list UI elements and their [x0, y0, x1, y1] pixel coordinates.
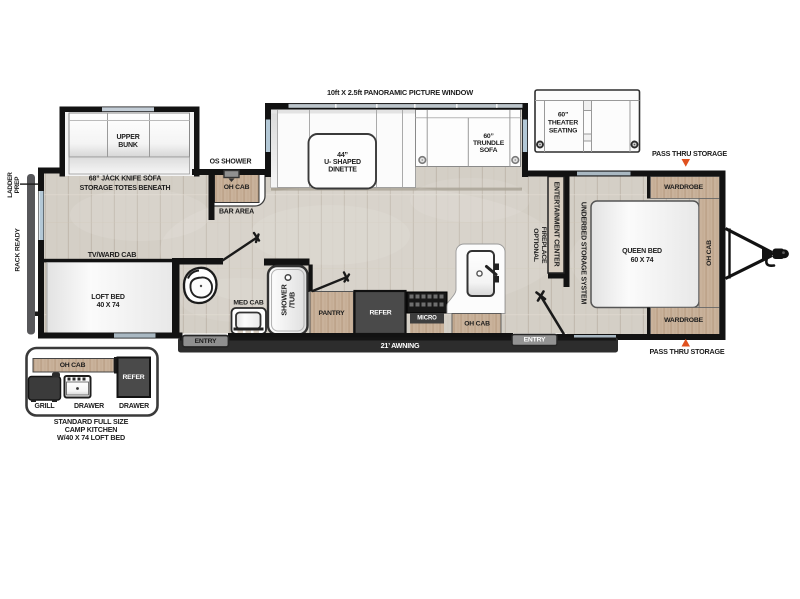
svg-text:BAR AREA: BAR AREA — [219, 209, 254, 216]
svg-text:10ft X 2.5ft PANORAMIC PICTURE: 10ft X 2.5ft PANORAMIC PICTURE WINDOW — [327, 88, 473, 97]
svg-text:MED CAB: MED CAB — [233, 299, 264, 306]
svg-text:LADDER: LADDER — [7, 172, 14, 198]
svg-text:OH CAB: OH CAB — [224, 184, 250, 191]
svg-text:OS SHOWER: OS SHOWER — [210, 159, 252, 166]
svg-text:ENTERTAINMENT CENTER: ENTERTAINMENT CENTER — [553, 182, 560, 267]
svg-text:PASS THRU STORAGE: PASS THRU STORAGE — [652, 149, 727, 158]
svg-text:BUNK: BUNK — [118, 142, 138, 149]
svg-text:UPPER: UPPER — [116, 134, 139, 141]
svg-text:STORAGE TOTES BENEATH: STORAGE TOTES BENEATH — [80, 185, 171, 192]
svg-text:60”: 60” — [558, 112, 568, 119]
svg-text:PANTRY: PANTRY — [319, 310, 346, 317]
svg-text:FIREPLACE: FIREPLACE — [540, 227, 547, 264]
svg-text:U- SHAPED: U- SHAPED — [324, 159, 361, 166]
svg-text:DRAWER: DRAWER — [119, 403, 149, 410]
svg-text:W/40 X 74 LOFT BED: W/40 X 74 LOFT BED — [57, 433, 125, 442]
svg-text:SEATING: SEATING — [549, 128, 577, 135]
svg-text:/TUB: /TUB — [288, 292, 297, 308]
svg-text:GRILL: GRILL — [35, 403, 56, 410]
svg-text:ENTRY: ENTRY — [195, 338, 217, 345]
svg-text:60”: 60” — [483, 133, 493, 140]
svg-text:PREP: PREP — [14, 176, 21, 194]
svg-text:21’ AWNING: 21’ AWNING — [381, 341, 420, 350]
svg-text:WARDROBE: WARDROBE — [664, 184, 703, 191]
svg-text:40 X 74: 40 X 74 — [97, 302, 120, 309]
svg-text:UNDERBED STORAGE SYSTEM: UNDERBED STORAGE SYSTEM — [580, 202, 587, 305]
svg-text:PASS THRU STORAGE: PASS THRU STORAGE — [649, 347, 724, 356]
svg-text:OH CAB: OH CAB — [60, 362, 86, 369]
svg-text:QUEEN BED: QUEEN BED — [622, 248, 662, 255]
svg-text:ENTRY: ENTRY — [524, 337, 546, 344]
svg-text:THEATER: THEATER — [548, 120, 578, 127]
svg-text:SOFA: SOFA — [480, 147, 498, 154]
svg-text:OH CAB: OH CAB — [706, 240, 713, 266]
svg-text:DINETTE: DINETTE — [328, 166, 357, 173]
svg-text:WARDROBE: WARDROBE — [664, 317, 703, 324]
svg-text:REFER: REFER — [369, 310, 391, 317]
svg-text:60 X 74: 60 X 74 — [631, 257, 654, 264]
svg-text:OH CAB: OH CAB — [464, 321, 490, 328]
svg-text:TRUNDLE: TRUNDLE — [473, 140, 505, 147]
svg-text:RACK READY: RACK READY — [15, 228, 22, 272]
svg-text:MICRO: MICRO — [417, 316, 437, 322]
svg-text:DRAWER: DRAWER — [74, 403, 104, 410]
svg-text:LOFT BED: LOFT BED — [91, 294, 125, 301]
svg-text:68” JACK KNIFE SOFA: 68” JACK KNIFE SOFA — [89, 176, 162, 183]
svg-text:OPTIONAL: OPTIONAL — [532, 228, 539, 262]
svg-text:REFER: REFER — [122, 374, 144, 381]
svg-text:44”: 44” — [337, 152, 348, 159]
svg-text:TV/WARD CAB: TV/WARD CAB — [88, 250, 137, 259]
